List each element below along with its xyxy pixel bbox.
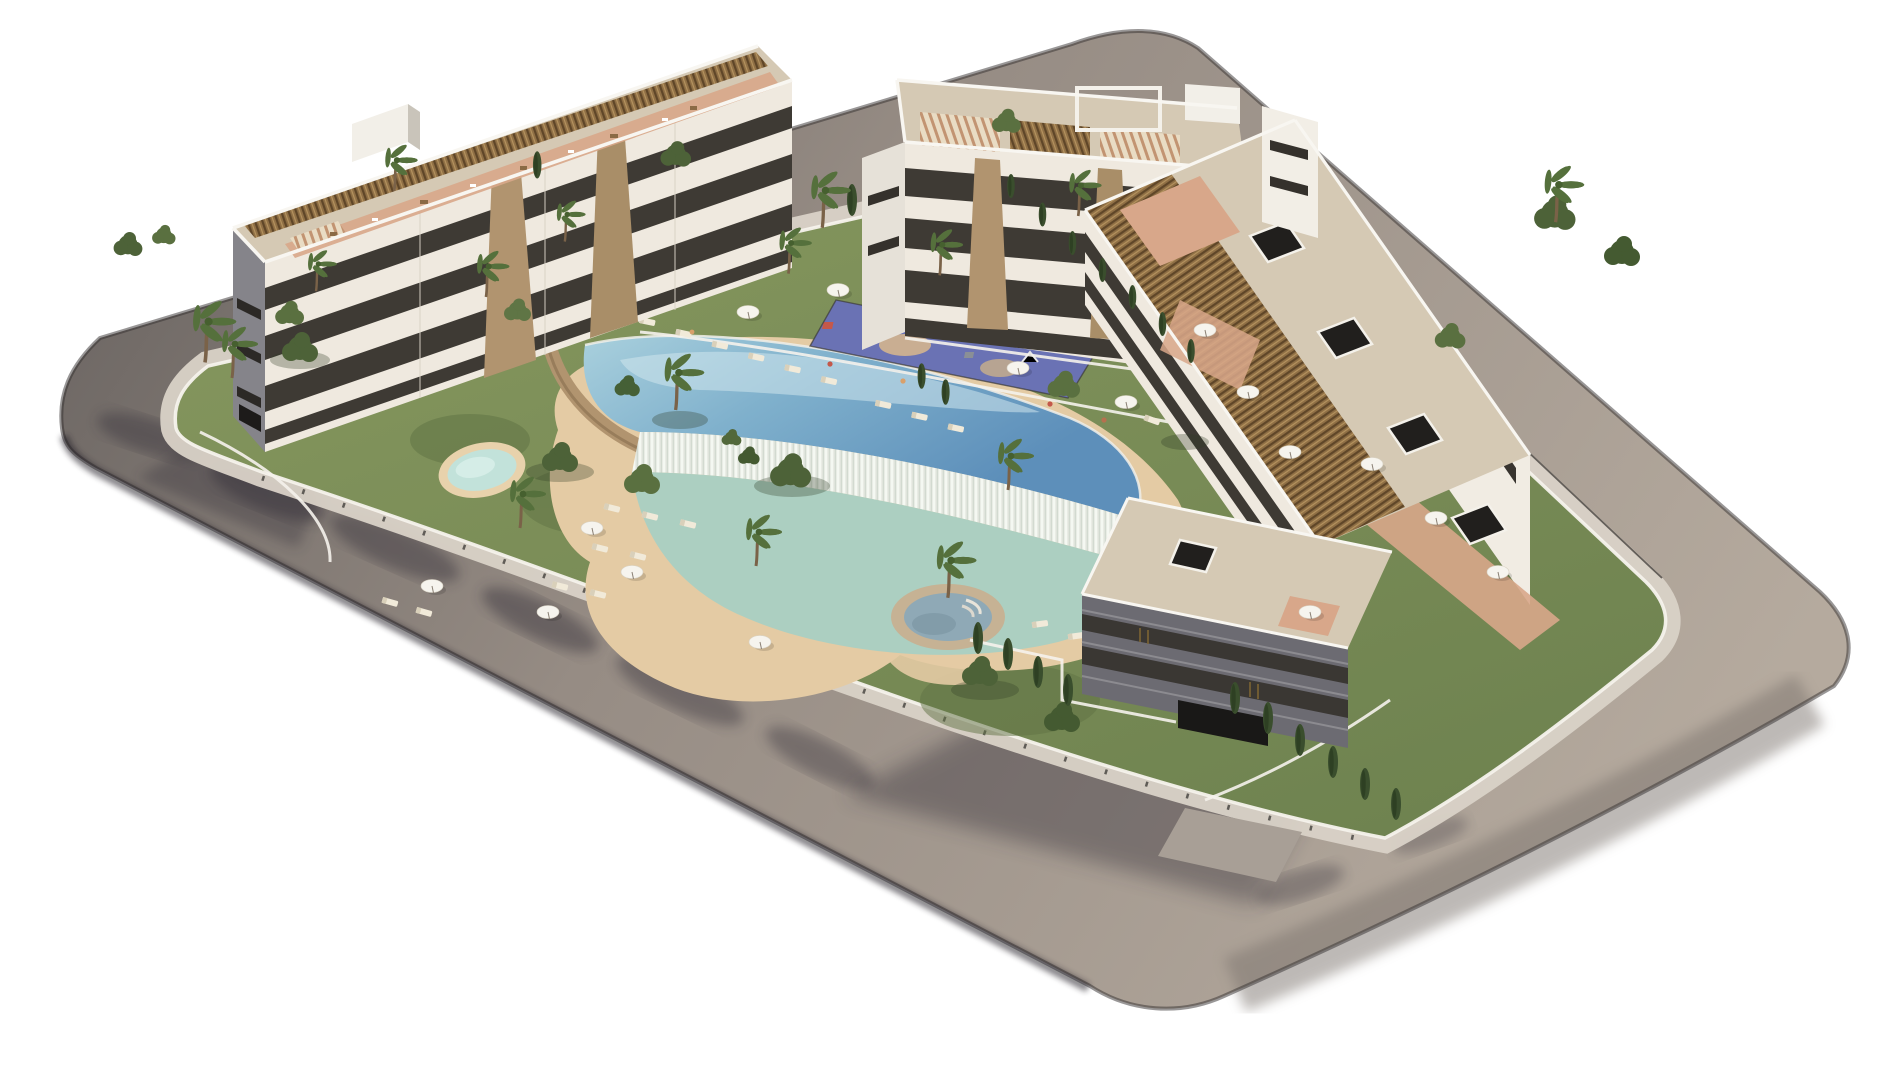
east-north-gable xyxy=(1262,106,1318,238)
render-canvas: Aerial 3D render of a modern white apart… xyxy=(0,0,1900,1069)
west-roof-access-box xyxy=(352,104,420,162)
architectural-render: Aerial 3D render of a modern white apart… xyxy=(0,0,1900,1069)
